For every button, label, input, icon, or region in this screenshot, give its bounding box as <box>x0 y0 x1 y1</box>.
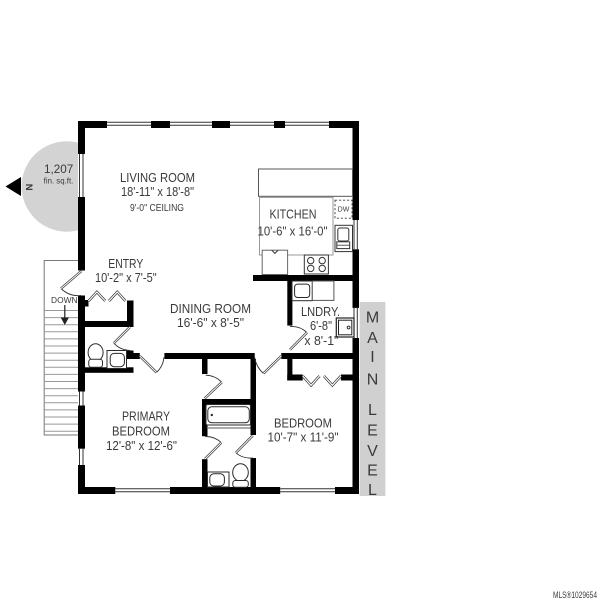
svg-text:N: N <box>367 371 379 388</box>
svg-text:BEDROOM: BEDROOM <box>274 416 332 431</box>
svg-text:10'-7" x 11'-9": 10'-7" x 11'-9" <box>268 431 339 445</box>
svg-text:BEDROOM: BEDROOM <box>112 424 170 439</box>
svg-text:A: A <box>367 330 378 347</box>
svg-text:fin. sq.ft.: fin. sq.ft. <box>44 175 74 185</box>
svg-text:16'-6" x 8'-5": 16'-6" x 8'-5" <box>177 316 244 330</box>
svg-text:18'-11" x 18'-8": 18'-11" x 18'-8" <box>121 185 194 199</box>
svg-text:M: M <box>366 310 379 327</box>
svg-text:LNDRY.: LNDRY. <box>301 304 340 319</box>
svg-text:DOWN: DOWN <box>51 295 78 305</box>
svg-text:LIVING ROOM: LIVING ROOM <box>120 170 195 185</box>
svg-text:L: L <box>368 402 377 419</box>
svg-text:ENTRY: ENTRY <box>108 256 143 271</box>
svg-text:9'-0" CEILING: 9'-0" CEILING <box>130 203 184 214</box>
svg-text:1,207: 1,207 <box>44 162 74 176</box>
svg-text:KITCHEN: KITCHEN <box>270 207 317 222</box>
svg-text:MLS®1029654: MLS®1029654 <box>553 590 597 600</box>
svg-text:12'-8" x 12'-6": 12'-8" x 12'-6" <box>106 439 177 453</box>
svg-text:I: I <box>370 349 374 366</box>
svg-text:N: N <box>23 184 34 191</box>
svg-text:L: L <box>368 482 377 499</box>
svg-text:10'-2" x 7'-5": 10'-2" x 7'-5" <box>95 271 157 285</box>
svg-text:DW: DW <box>338 207 350 214</box>
svg-text:V: V <box>367 443 378 460</box>
svg-text:x 8'-1": x 8'-1" <box>304 334 338 348</box>
svg-text:6'-8": 6'-8" <box>310 319 332 333</box>
svg-text:E: E <box>367 463 378 480</box>
svg-text:E: E <box>367 423 378 440</box>
svg-text:PRIMARY: PRIMARY <box>122 409 170 424</box>
svg-text:DINING ROOM: DINING ROOM <box>170 301 251 316</box>
svg-text:10'-6" x 16'-0": 10'-6" x 16'-0" <box>258 224 328 238</box>
